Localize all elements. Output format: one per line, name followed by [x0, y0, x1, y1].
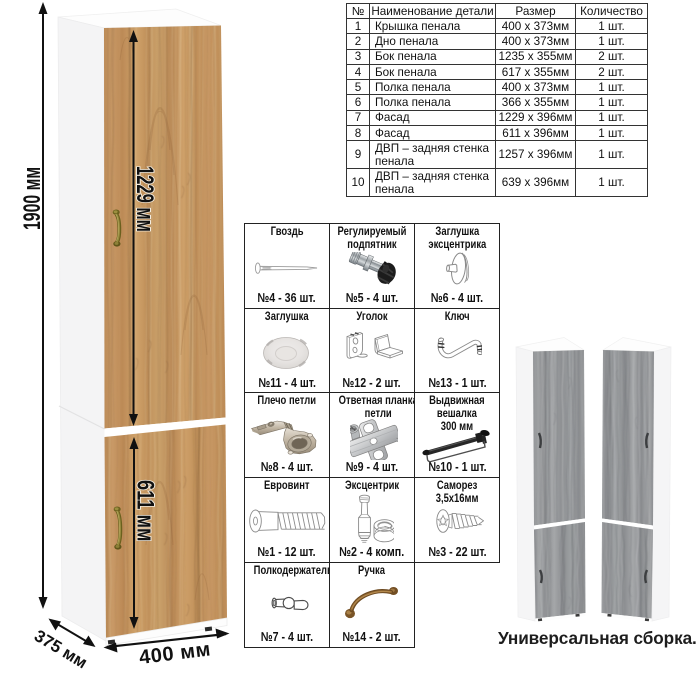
- svg-text:1900 мм: 1900 мм: [20, 167, 46, 230]
- svg-text:611 мм: 611 мм: [132, 480, 159, 541]
- svg-text:1229 мм: 1229 мм: [131, 166, 158, 232]
- svg-text:375 мм: 375 мм: [31, 626, 91, 670]
